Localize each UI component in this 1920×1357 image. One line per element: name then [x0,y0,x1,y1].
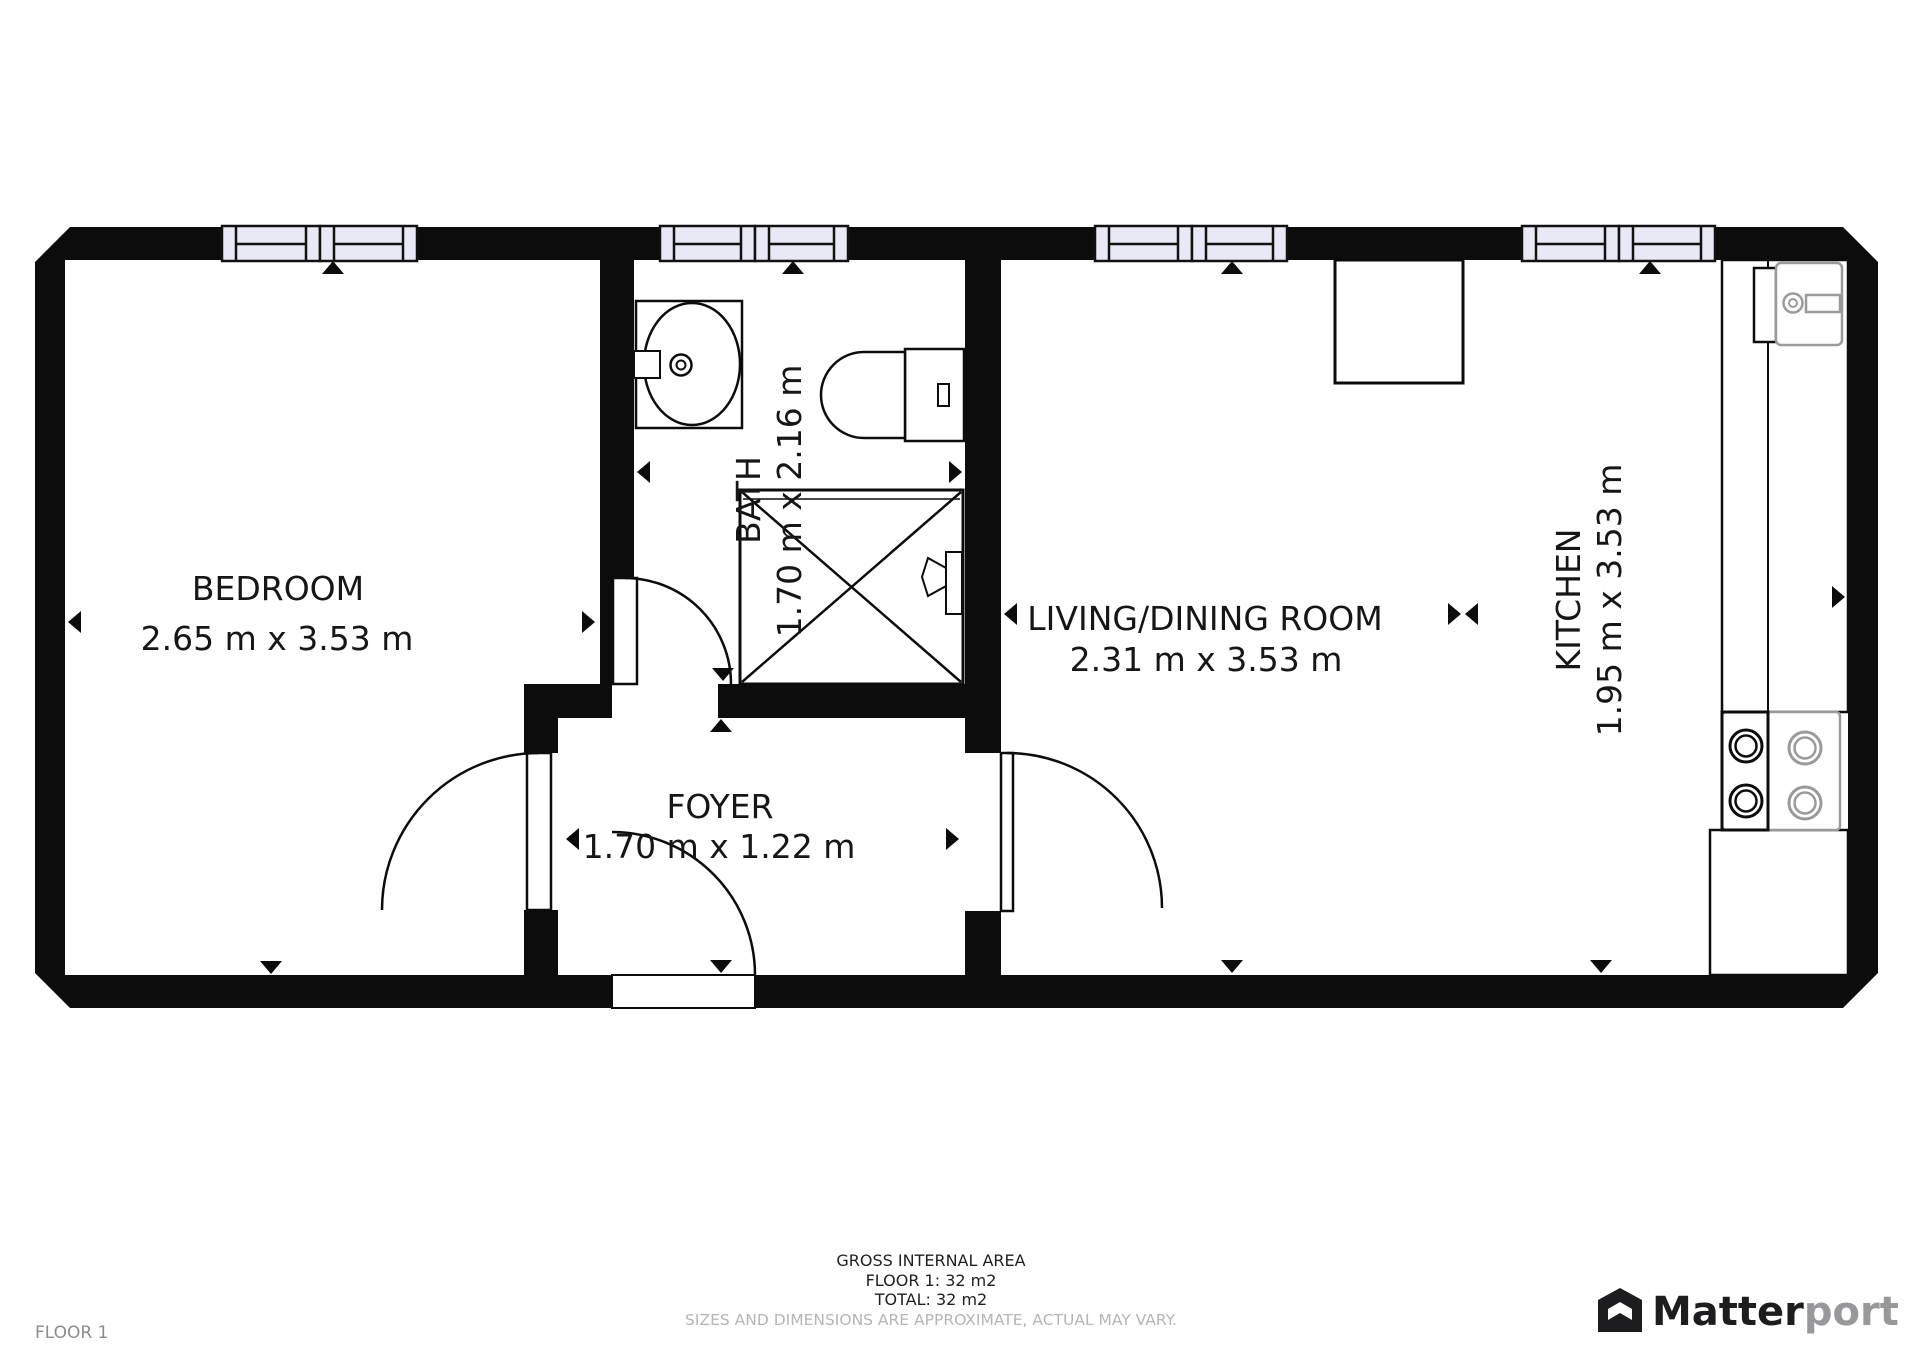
marker-right-icon [949,461,962,483]
logo-primary: Matter [1652,1289,1804,1335]
wall-bedroom-foyer-top [524,718,558,753]
room-name: LIVING/DINING ROOM [1027,599,1382,638]
logo-secondary: port [1804,1289,1899,1335]
dining-table [1335,260,1463,383]
disclaimer-text: SIZES AND DIMENSIONS ARE APPROXIMATE, AC… [685,1311,1177,1329]
room-label-kitchen: KITCHEN 1.95 m x 3.53 m [1549,464,1629,737]
footer: GROSS INTERNAL AREA FLOOR 1: 32 m2 TOTAL… [35,1251,1177,1343]
window-bath [660,226,848,261]
room-name: FOYER [666,787,773,826]
marker-down-icon [1590,960,1612,973]
room-name: BATH [729,456,768,544]
matterport-logo-icon [1598,1288,1642,1332]
floor-indicator: FLOOR 1 [35,1323,108,1343]
marker-down-icon [1221,960,1243,973]
room-dims: 1.70 m x 1.22 m [583,827,856,866]
shower-head-icon [922,552,962,614]
room-name: KITCHEN [1549,529,1588,672]
marker-up-icon [1639,261,1661,274]
kitchen-fixtures [1710,260,1848,975]
room-label-bedroom: BEDROOM 2.65 m x 3.53 m [141,569,414,658]
matterport-logo: Matterport [1598,1288,1899,1335]
marker-up-icon [782,261,804,274]
room-dims: 1.95 m x 3.53 m [1590,464,1629,737]
wall-foyer-living-top [965,260,1001,753]
marker-left-icon [637,461,650,483]
door-bath [612,578,731,718]
marker-up-icon [322,261,344,274]
floor-area-label: FLOOR 1: 32 m2 [866,1271,997,1290]
marker-up-icon [1221,261,1243,274]
marker-down-icon [710,960,732,973]
door-living [965,753,1162,911]
window-bedroom [222,226,417,261]
marker-right-icon [582,611,595,633]
floor-plan-page: BEDROOM 2.65 m x 3.53 m BATH 1.70 m x 2.… [0,0,1920,1357]
marker-up-icon [710,719,732,732]
stove [1722,712,1840,830]
room-label-foyer: FOYER 1.70 m x 1.22 m [583,787,856,866]
kitchen-sink [1754,263,1842,345]
marker-left-icon [566,828,579,850]
room-dims: 2.31 m x 3.53 m [1070,640,1343,679]
floor-plan: BEDROOM 2.65 m x 3.53 m BATH 1.70 m x 2.… [0,0,1920,1357]
room-dims: 1.70 m x 2.16 m [770,365,809,638]
bathroom-sink [634,301,742,428]
gross-internal-area-label: GROSS INTERNAL AREA [836,1251,1025,1270]
wall-bedroom-foyer-bottom [524,910,558,975]
total-area-label: TOTAL: 32 m2 [874,1290,987,1309]
toilet [821,349,964,441]
wall-foyer-living-bottom [965,911,1001,975]
marker-right-icon [946,828,959,850]
marker-down-icon [260,961,282,974]
marker-left-icon [1004,603,1017,625]
marker-left-icon [68,611,81,633]
wall-bath-foyer-right [718,684,1001,718]
window-kitchen [1522,226,1715,261]
kitchen-counter [1710,260,1848,975]
matterport-wordmark: Matterport [1652,1289,1899,1335]
room-name: BEDROOM [192,569,364,608]
room-label-living: LIVING/DINING ROOM 2.31 m x 3.53 m [1027,599,1382,679]
door-bedroom [382,753,558,910]
room-dims: 2.65 m x 3.53 m [141,619,414,658]
wall-bath-foyer-left [524,684,612,718]
window-living [1095,226,1287,261]
opening-marker-icon [1448,603,1478,625]
